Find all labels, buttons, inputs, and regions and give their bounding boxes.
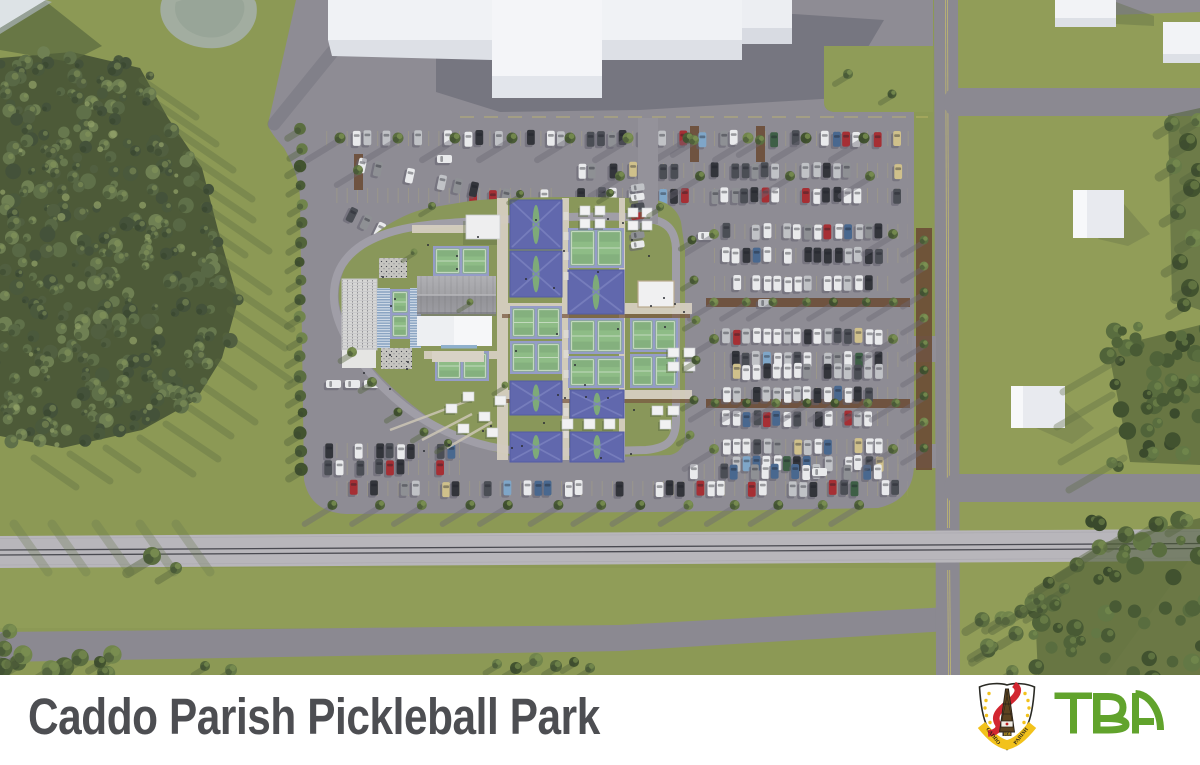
svg-text:1838: 1838 bbox=[1003, 733, 1010, 737]
